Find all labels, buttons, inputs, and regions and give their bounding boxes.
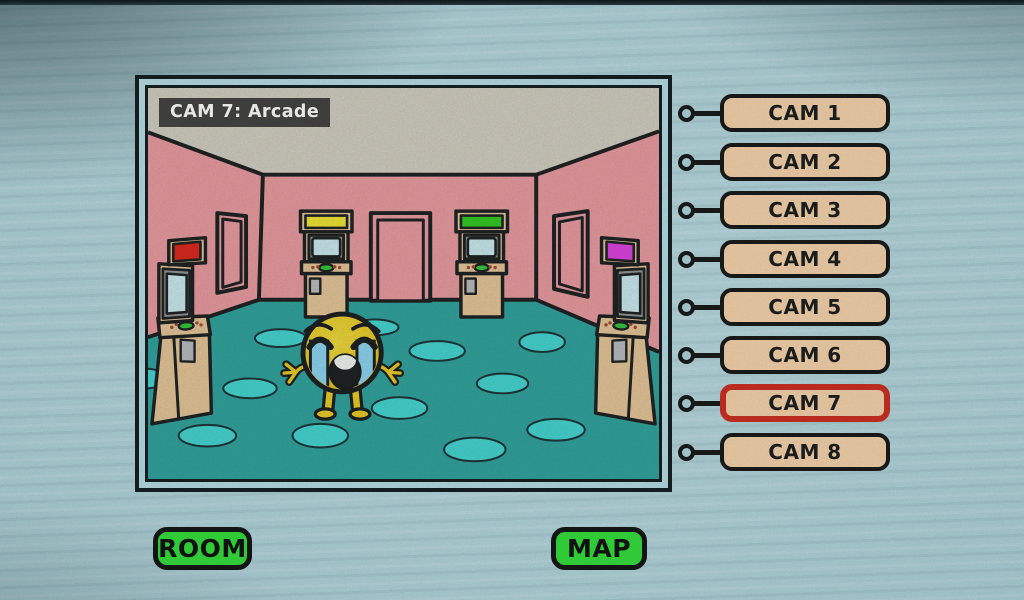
camera-viewport-frame: CAM 7: Arcade: [135, 75, 672, 492]
cam-row-1: CAM 1: [670, 94, 892, 132]
camera-connector-node: [678, 395, 695, 412]
camera-connector-node: [678, 105, 695, 122]
cam-button-3[interactable]: CAM 3: [720, 191, 890, 229]
camera-connector-node: [678, 444, 695, 461]
camera-connector-node: [678, 251, 695, 268]
cam-row-3: CAM 3: [670, 191, 892, 229]
cam-button-1[interactable]: CAM 1: [720, 94, 890, 132]
camera-connector-wire: [694, 450, 722, 455]
camera-connector-node: [678, 202, 695, 219]
cam-button-2[interactable]: CAM 2: [720, 143, 890, 181]
camera-connector-wire: [694, 305, 722, 310]
camera-connector-wire: [694, 111, 722, 116]
camera-connector-node: [678, 299, 695, 316]
scene-texture: [148, 88, 659, 479]
camera-connector-wire: [694, 257, 722, 262]
camera-connector-wire: [694, 160, 722, 165]
cam-button-8[interactable]: CAM 8: [720, 433, 890, 471]
camera-feed: CAM 7: Arcade: [145, 85, 662, 482]
app-root: CAM 7: Arcade CAM 1 CAM 2 CAM 3 CAM 4 CA…: [0, 0, 1024, 600]
cam-row-6: CAM 6: [670, 336, 892, 374]
cam-button-7[interactable]: CAM 7: [720, 384, 890, 422]
cam-button-5[interactable]: CAM 5: [720, 288, 890, 326]
cam-row-2: CAM 2: [670, 143, 892, 181]
cam-button-6[interactable]: CAM 6: [720, 336, 890, 374]
cam-row-8: CAM 8: [670, 433, 892, 471]
top-screen-edge: [0, 0, 1024, 5]
room-button[interactable]: ROOM: [153, 527, 252, 570]
cam-row-7: CAM 7: [670, 384, 892, 422]
camera-connector-node: [678, 154, 695, 171]
camera-connector-wire: [694, 208, 722, 213]
camera-connector-wire: [694, 401, 722, 406]
camera-title-badge: CAM 7: Arcade: [159, 98, 330, 127]
map-button[interactable]: MAP: [551, 527, 647, 570]
cam-row-5: CAM 5: [670, 288, 892, 326]
cam-row-4: CAM 4: [670, 240, 892, 278]
camera-scene: [148, 88, 659, 479]
camera-title-text: CAM 7: Arcade: [170, 102, 319, 122]
cam-button-4[interactable]: CAM 4: [720, 240, 890, 278]
camera-connector-wire: [694, 353, 722, 358]
camera-connector-node: [678, 347, 695, 364]
